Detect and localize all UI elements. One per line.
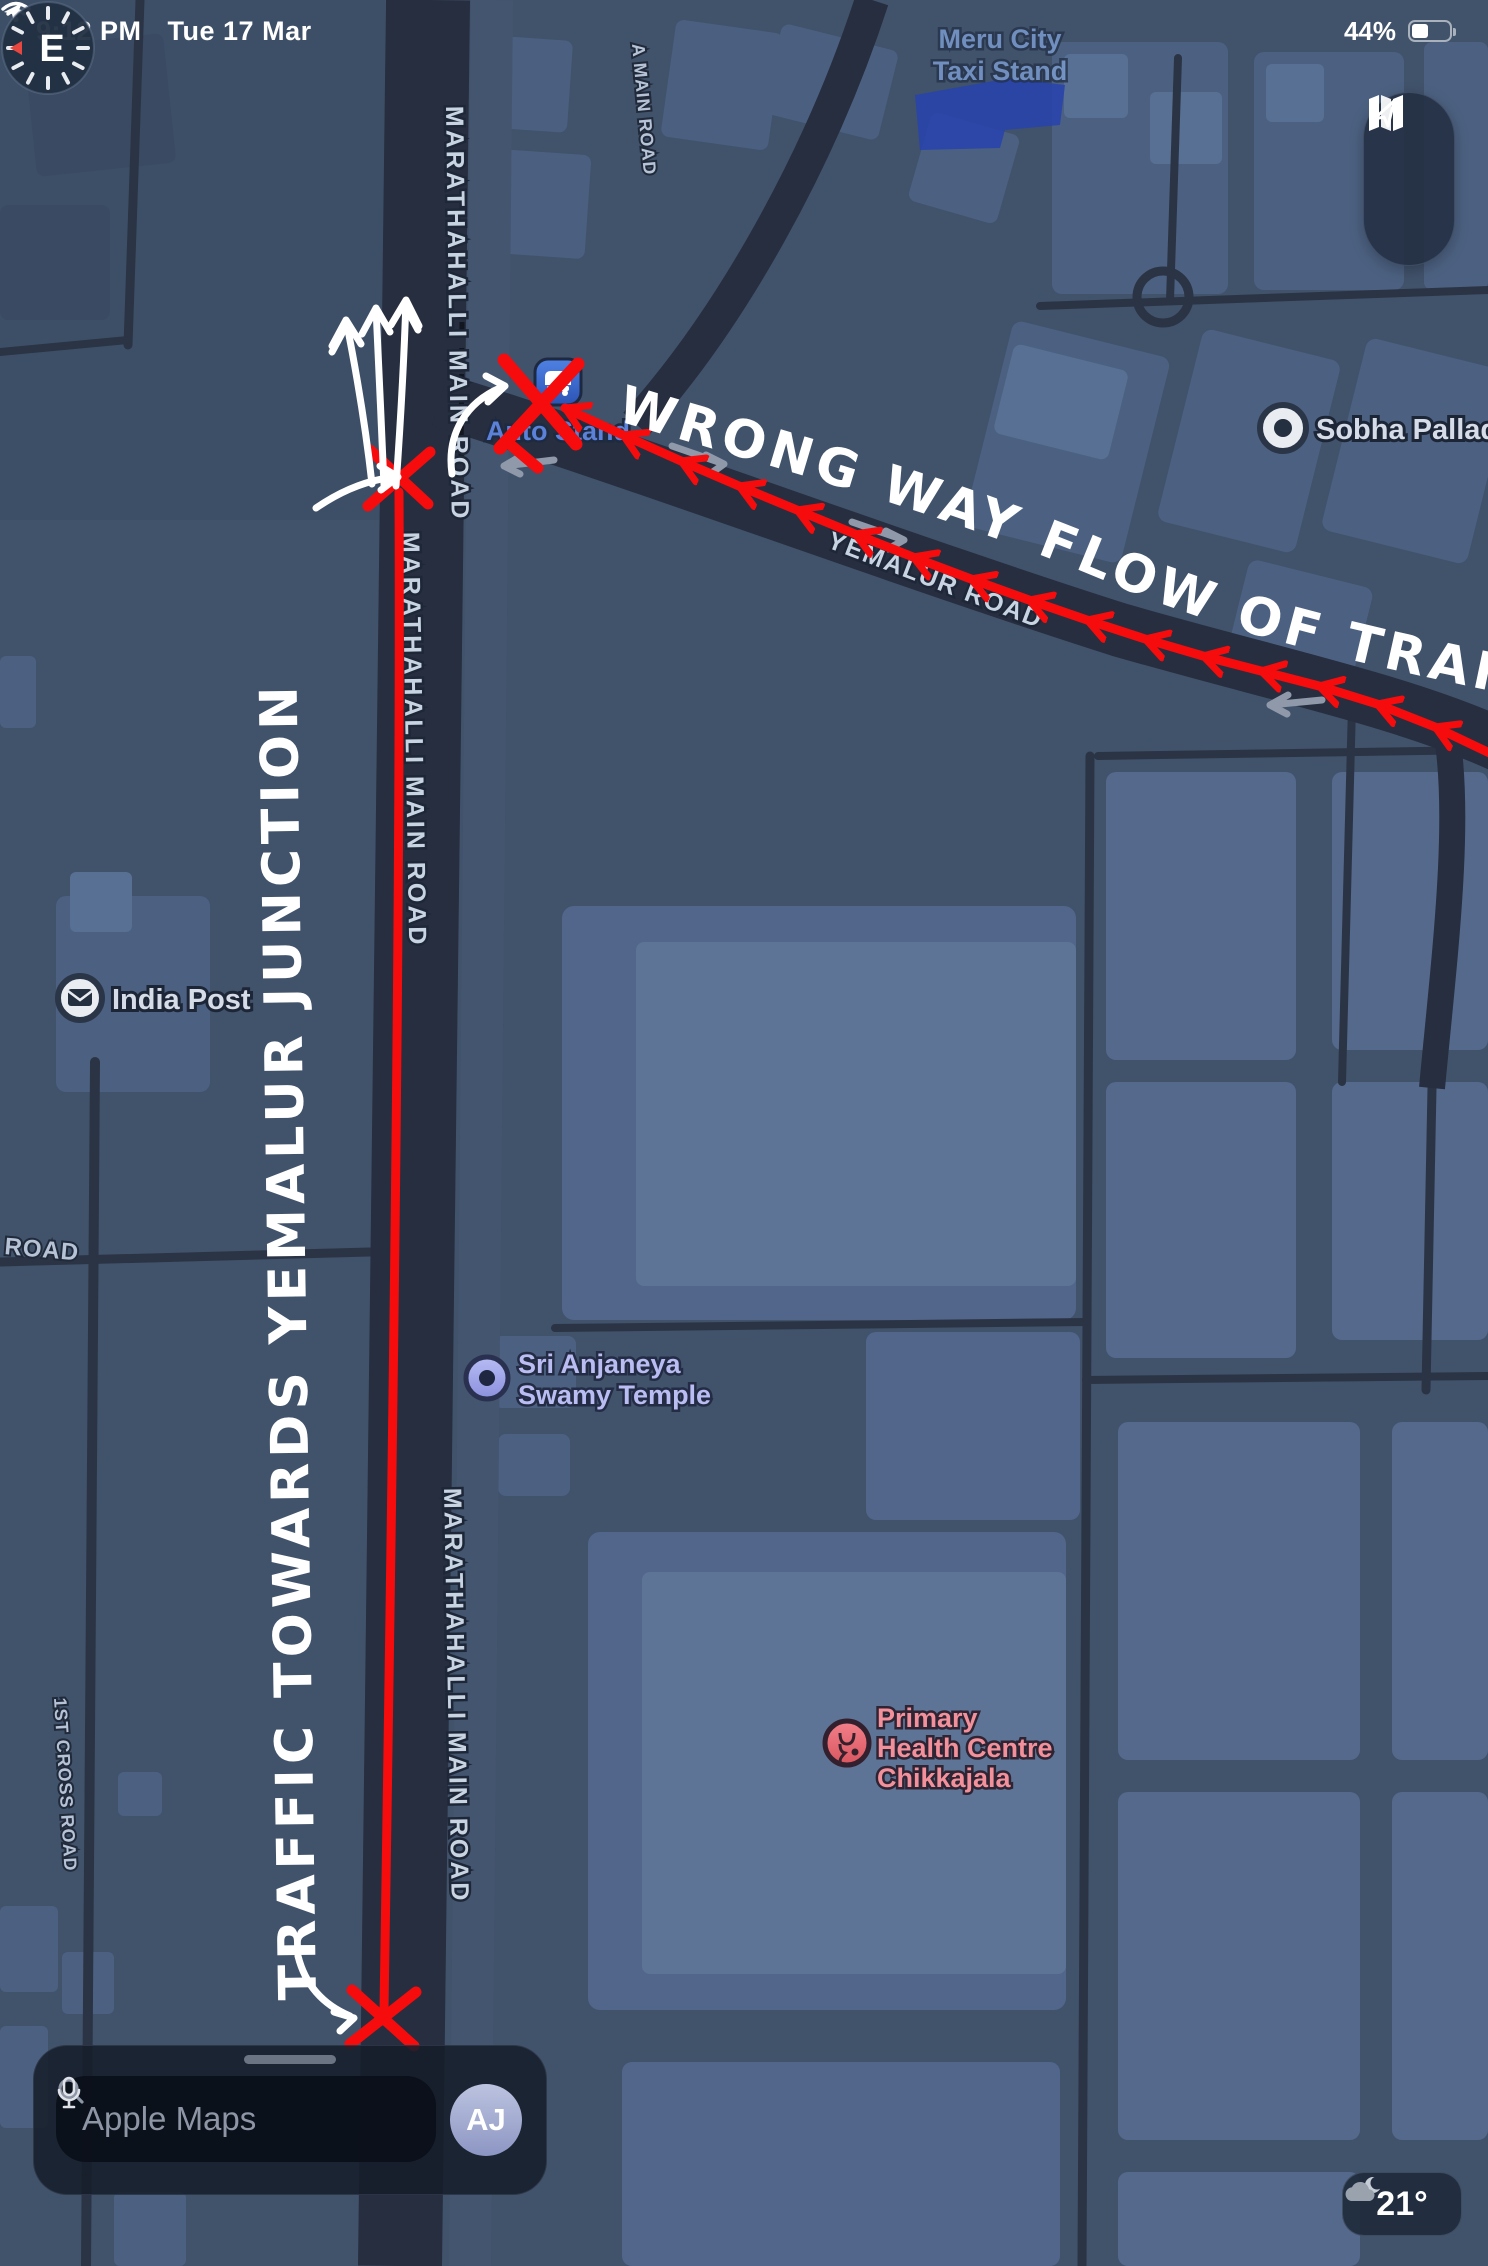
svg-text:India Post: India Post [112, 984, 251, 1016]
drag-handle[interactable] [244, 2055, 336, 2064]
search-panel: Apple Maps AJ [33, 2045, 547, 2195]
svg-text:Health Centre: Health Centre [877, 1733, 1053, 1763]
map-canvas[interactable]: MARATHAHALLI MAIN ROAD MARATHAHALLI MAIN… [0, 0, 1488, 2266]
battery-percent: 44% [1344, 16, 1396, 47]
svg-text:Swamy Temple: Swamy Temple [518, 1380, 711, 1410]
cloud-moon-icon [1343, 2173, 1387, 2207]
svg-text:Chikkajala: Chikkajala [877, 1763, 1012, 1793]
svg-text:Sri Anjaneya: Sri Anjaneya [518, 1349, 682, 1379]
map-controls [1363, 92, 1455, 266]
service-lane [470, 0, 492, 2266]
dictation-mic-icon[interactable] [56, 2076, 82, 2110]
battery-icon [1408, 20, 1452, 42]
apple-maps-screen: MARATHAHALLI MAIN ROAD MARATHAHALLI MAIN… [0, 0, 1488, 2266]
svg-text:Primary: Primary [877, 1703, 978, 1733]
svg-text:MARATHAHALLI MAIN ROAD: MARATHAHALLI MAIN ROAD [440, 106, 474, 522]
compass-heading: E [39, 28, 64, 70]
status-date: Tue 17 Mar [168, 16, 312, 47]
account-avatar[interactable]: AJ [450, 2084, 522, 2156]
compass-button[interactable]: E [0, 0, 96, 96]
road-label-marathahalli-1: MARATHAHALLI MAIN ROAD [440, 106, 474, 522]
search-input[interactable]: Apple Maps [56, 2076, 436, 2162]
status-bar: 9:12 PM Tue 17 Mar 44% [0, 0, 1488, 62]
svg-text:Sobha Palladian: Sobha Palladian [1316, 414, 1488, 446]
locate-me-button[interactable] [1364, 93, 1404, 133]
search-placeholder: Apple Maps [82, 2100, 410, 2138]
weather-widget[interactable]: 21° [1342, 2172, 1462, 2236]
avatar-initials: AJ [466, 2102, 506, 2138]
